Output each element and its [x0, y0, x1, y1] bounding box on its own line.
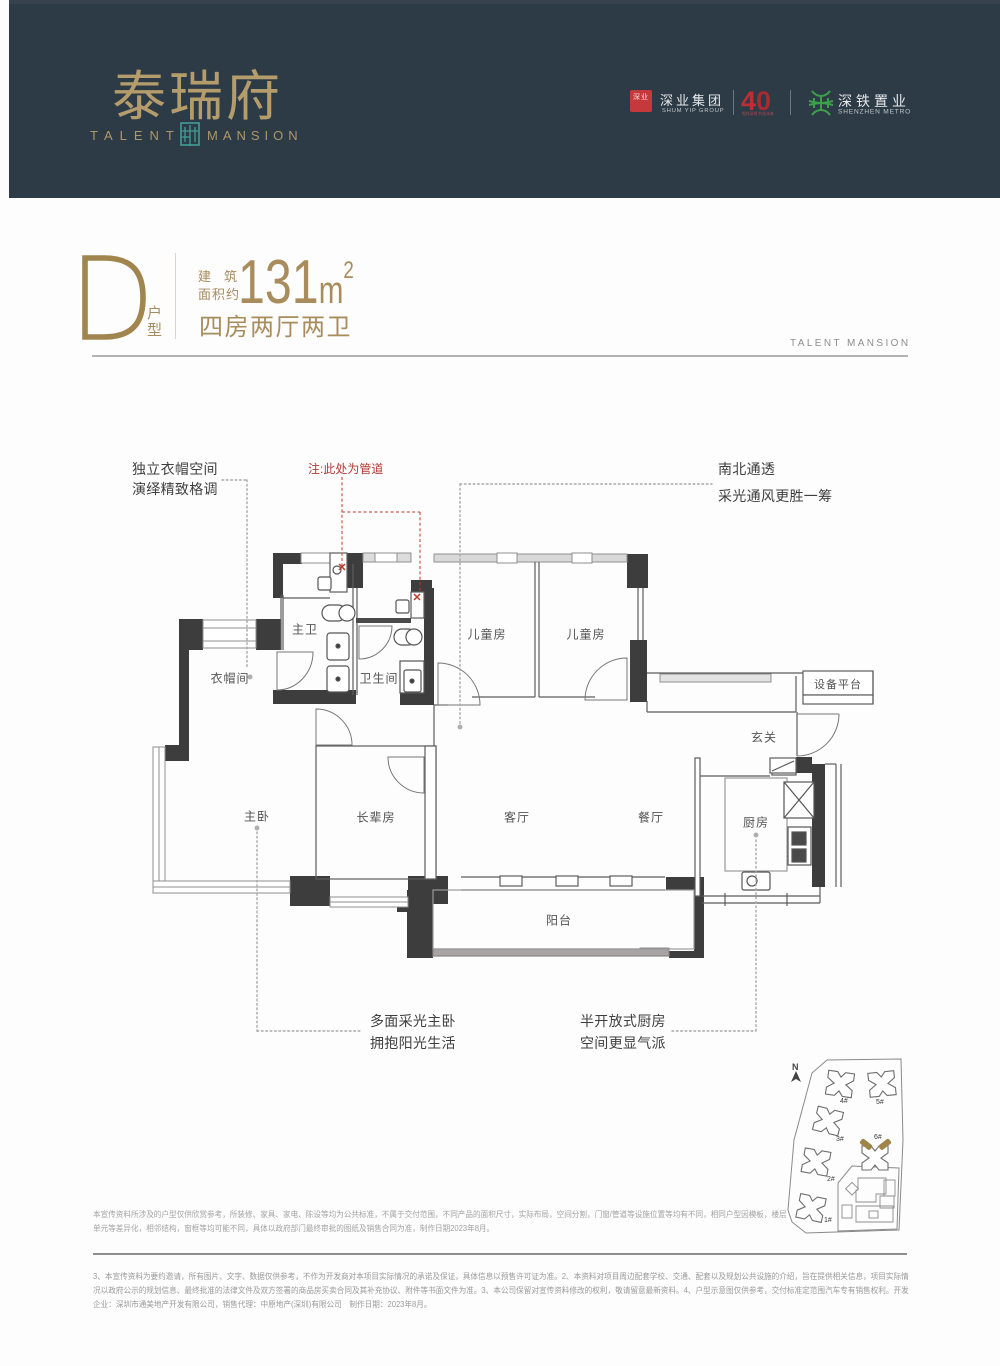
svg-text:6#: 6#	[874, 1134, 882, 1141]
svg-text:N: N	[792, 1062, 799, 1072]
svg-text:4#: 4#	[840, 1098, 848, 1105]
svg-text:5#: 5#	[876, 1099, 884, 1106]
svg-text:3#: 3#	[836, 1136, 844, 1143]
svg-text:1#: 1#	[824, 1217, 832, 1224]
svg-text:2#: 2#	[827, 1176, 835, 1183]
